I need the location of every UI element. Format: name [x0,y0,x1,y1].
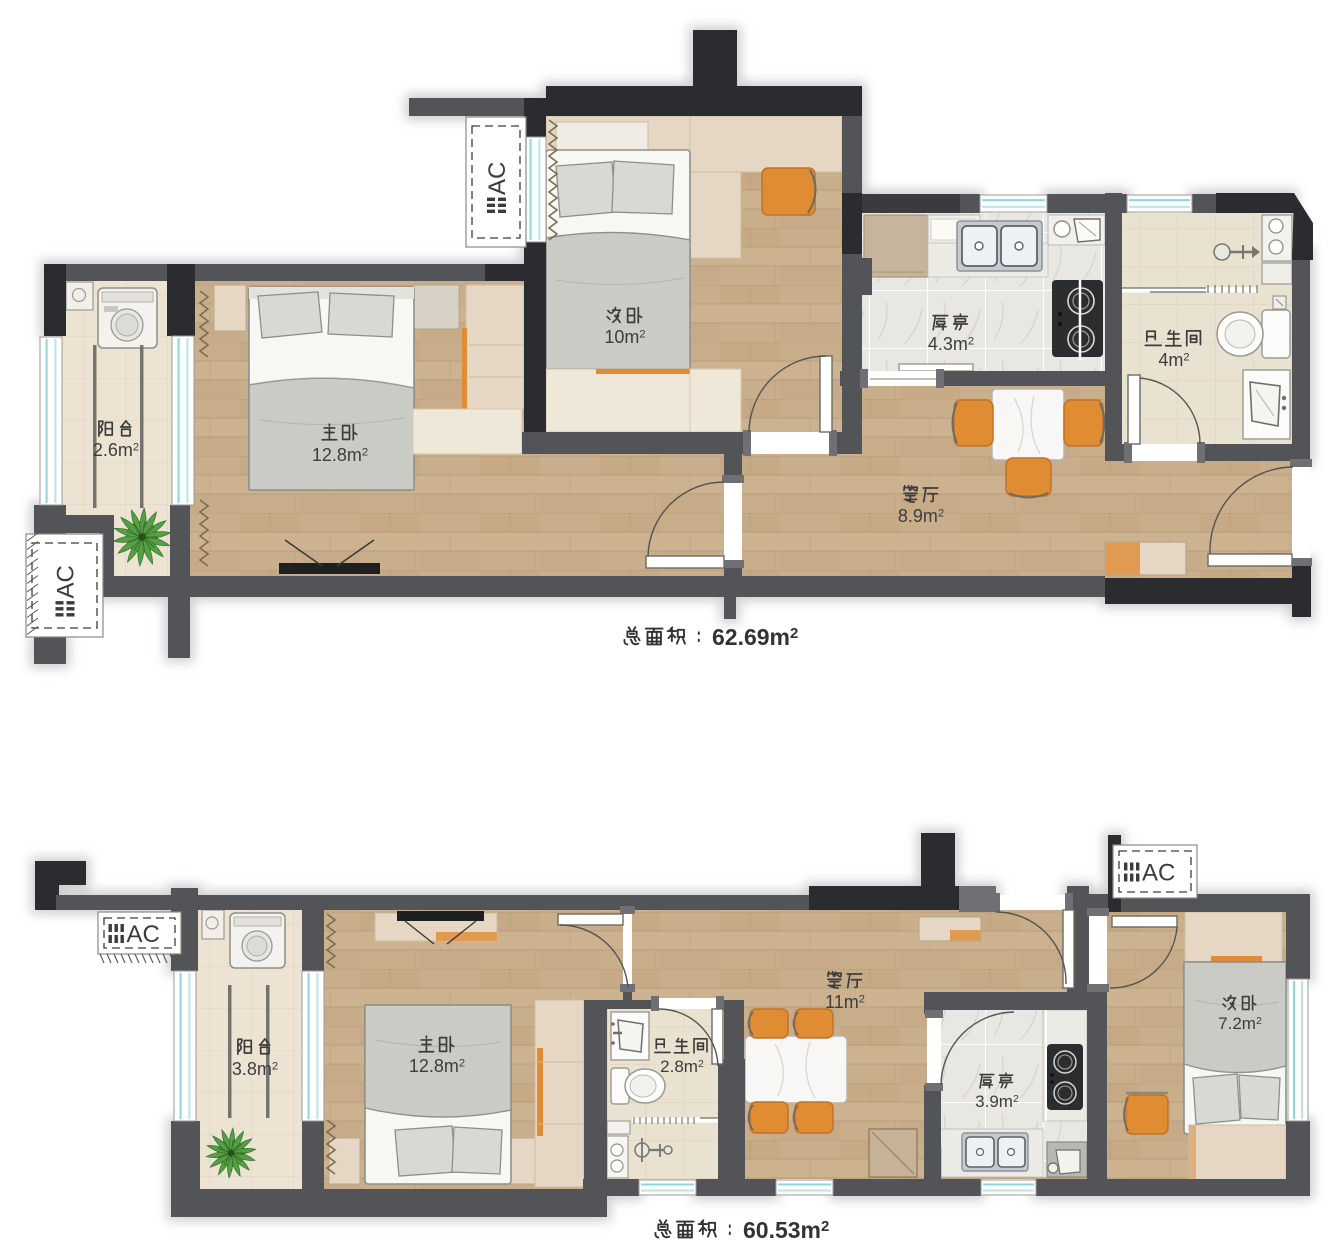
svg-text:3.8m2: 3.8m2 [232,1059,278,1079]
svg-text:AC: AC [1142,860,1175,887]
svg-text:12.8m2: 12.8m2 [409,1056,465,1076]
svg-text:60.53m2: 60.53m2 [743,1217,829,1243]
svg-text:12.8m2: 12.8m2 [312,445,368,465]
svg-text:AC: AC [127,921,160,948]
svg-text:2.6m2: 2.6m2 [93,440,139,460]
svg-text:2.8m2: 2.8m2 [660,1057,704,1076]
svg-text:7.2m2: 7.2m2 [1218,1014,1262,1033]
svg-text:AC: AC [53,565,80,598]
svg-text:AC: AC [484,162,511,195]
svg-text:4.3m2: 4.3m2 [928,334,974,354]
svg-text:3.9m2: 3.9m2 [975,1092,1019,1111]
svg-text:8.9m2: 8.9m2 [898,506,944,526]
svg-text:62.69m2: 62.69m2 [712,624,798,650]
